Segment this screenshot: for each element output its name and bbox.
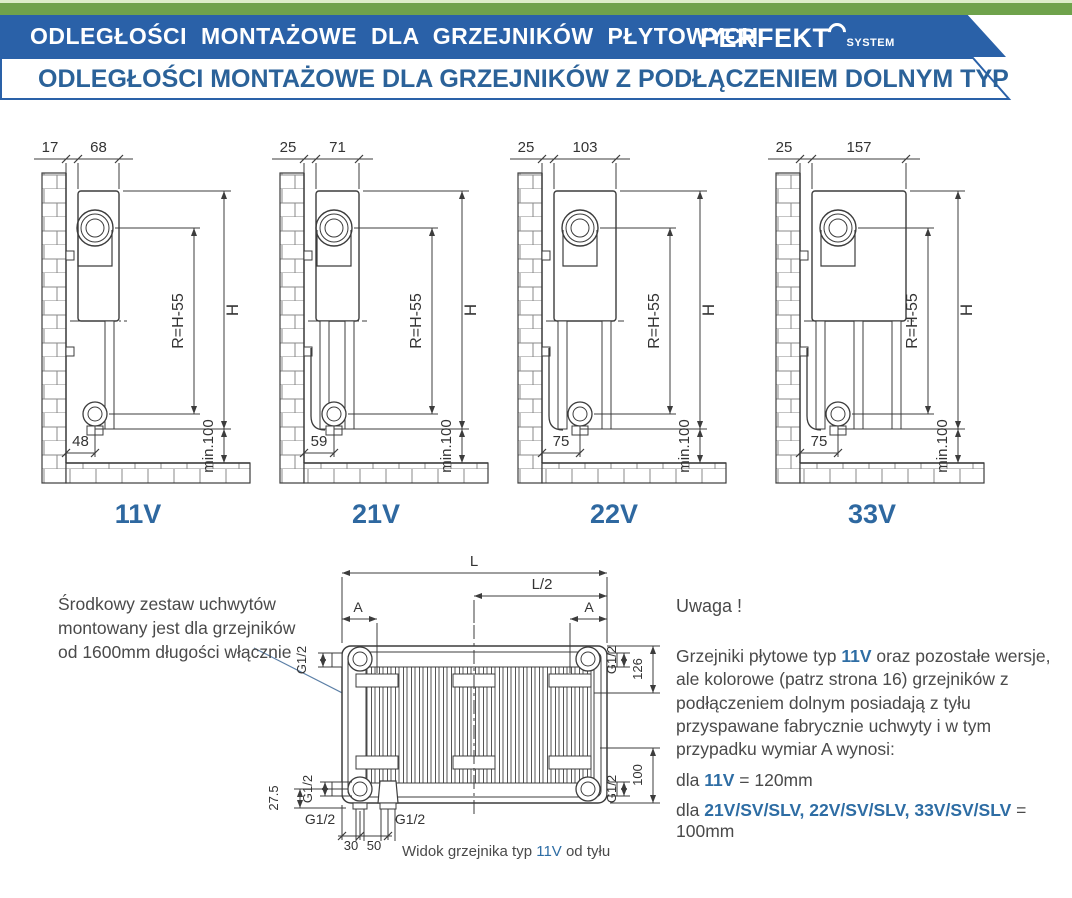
dim-bottom-offset: 75 [553,433,570,450]
dim-A-left: A [353,599,363,615]
subtitle-shape: ODLEGŁOŚCI MONTAŻOWE DLA GRZEJNIKÓW Z PO… [0,57,1014,101]
dim-100: 100 [630,764,645,786]
top-green-strip [0,3,1072,15]
note-line-11v: dla 11V = 120mm [676,770,1068,791]
dim-radius-label: R=H-55 [408,293,425,349]
note-para-highlight: 11V [841,646,871,666]
subtitle-banner: ODLEGŁOŚCI MONTAŻOWE DLA GRZEJNIKÓW Z PO… [0,57,1014,106]
diagram-svg-33V: 25157HR=H-55min.10075 [758,133,986,485]
note-line1-suffix: = 120mm [734,770,812,790]
note-uwaga: Uwaga ! Grzejniki płytowe typ 11V oraz p… [676,596,1068,842]
title-banner: ODLEGŁOŚCI MONTAŻOWE DLA GRZEJNIKÓW PŁYT… [0,15,1006,57]
label-g12-top-right: G1/2 [604,646,619,674]
dim-height-label: H [461,304,480,316]
diagram-svg-22V: 25103HR=H-55min.10075 [500,133,728,485]
note-line2-prefix: dla [676,800,704,820]
diagram-33v: 25157HR=H-55min.10075 [758,133,986,490]
note-heading: Uwaga ! [676,596,1068,617]
dim-top-gap: 25 [776,139,793,156]
dim-depth: 103 [572,139,597,156]
subtitle-text: ODLEGŁOŚCI MONTAŻOWE DLA GRZEJNIKÓW Z PO… [38,63,1014,93]
note-left-line2: montowany jest dla grzejników [58,617,338,641]
dim-27-5: 27.5 [266,785,281,810]
dim-A-right: A [584,599,594,615]
diagram-svg-11V: 1768HR=H-55min.10048 [24,133,252,485]
dim-depth: 68 [90,139,107,156]
label-g12-bottom-right: G1/2 [604,775,619,803]
diagram-22v: 25103HR=H-55min.10075 [500,133,728,490]
note-para-part1: Grzejniki płytowe typ [676,646,841,666]
dim-depth: 71 [329,139,346,156]
diagram-21v: 2571HR=H-55min.10059 [262,133,490,490]
dim-depth: 157 [846,139,871,156]
dim-L2: L/2 [532,576,553,593]
brand-name: PERFEKT [700,23,830,54]
dim-min-label: min.100 [934,419,951,472]
dim-min-label: min.100 [676,419,693,472]
note-center-brackets: Środkowy zestaw uchwytów montowany jest … [58,593,338,664]
dim-bottom-offset: 75 [811,433,828,450]
caption-33v: 33V [758,499,986,530]
label-g12-port-right: G1/2 [395,811,426,827]
dim-30: 30 [344,838,358,853]
dim-bottom-offset: 48 [72,433,89,450]
brand-logo: PERFEKT SYSTEM [700,23,895,54]
dim-radius-label: R=H-55 [170,293,187,349]
dim-L: L [470,553,478,570]
brand-sub: SYSTEM [847,37,895,49]
note-line1-prefix: dla [676,770,704,790]
dim-top-gap: 25 [518,139,535,156]
dim-min-label: min.100 [438,419,455,472]
dim-bottom-offset: 59 [311,433,328,450]
page-title: ODLEGŁOŚCI MONTAŻOWE DLA GRZEJNIKÓW PŁYT… [0,23,759,50]
note-left-line1: Środkowy zestaw uchwytów [58,593,338,617]
label-g12-bottom-left: G1/2 [300,775,315,803]
dim-top-gap: 25 [280,139,297,156]
note-left-line3: od 1600mm długości włącznie [58,641,338,665]
dim-126: 126 [630,658,645,680]
diagram-11v: 1768HR=H-55min.10048 [24,133,252,490]
caption-11v: 11V [24,499,252,530]
note-paragraph: Grzejniki płytowe typ 11V oraz pozostałe… [676,645,1068,761]
dim-height-label: H [223,304,242,316]
caption-21v: 21V [262,499,490,530]
caption-22v: 22V [500,499,728,530]
label-g12-port-left: G1/2 [305,811,336,827]
note-line1-highlight: 11V [704,770,734,790]
dim-min-label: min.100 [200,419,217,472]
note-line-other: dla 21V/SV/SLV, 22V/SV/SLV, 33V/SV/SLV =… [676,800,1068,842]
note-line2-highlight: 21V/SV/SLV, 22V/SV/SLV, 33V/SV/SLV [704,800,1011,820]
page: ODLEGŁOŚCI MONTAŻOWE DLA GRZEJNIKÓW PŁYT… [0,0,1072,898]
dim-50: 50 [367,838,381,853]
rear-caption: Widok grzejnika typ 11V od tyłu [402,843,610,860]
dim-top-gap: 17 [42,139,59,156]
dim-height-label: H [957,304,976,316]
dim-radius-label: R=H-55 [904,293,921,349]
diagram-svg-21V: 2571HR=H-55min.10059 [262,133,490,485]
dim-height-label: H [699,304,718,316]
dim-radius-label: R=H-55 [646,293,663,349]
